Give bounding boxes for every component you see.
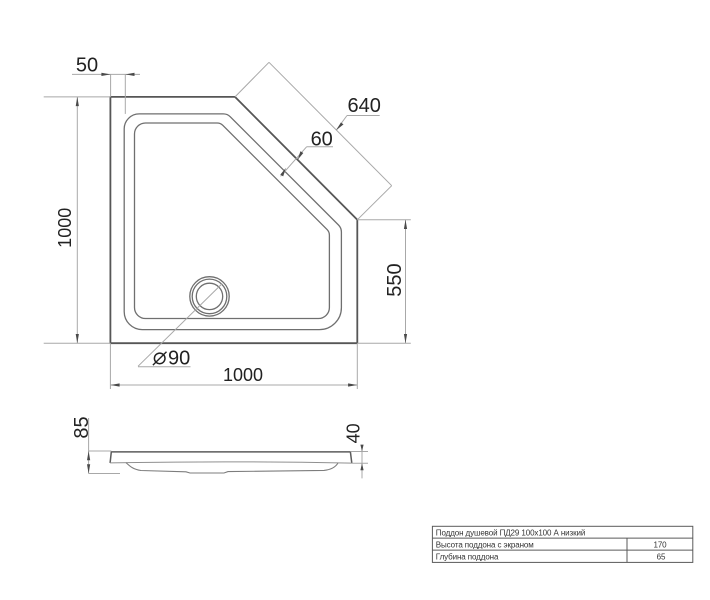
svg-text:1000: 1000 [55, 208, 75, 248]
svg-text:65: 65 [657, 552, 666, 561]
svg-text:550: 550 [384, 263, 406, 296]
svg-text:Поддон душевой ПД29 100х100 А: Поддон душевой ПД29 100х100 А низкий [436, 528, 585, 537]
svg-text:40: 40 [344, 423, 364, 443]
svg-text:90: 90 [168, 348, 190, 370]
svg-text:60: 60 [311, 128, 333, 150]
svg-text:50: 50 [76, 54, 98, 76]
svg-text:Глубина поддона: Глубина поддона [436, 552, 499, 561]
svg-text:Высота поддона с экраном: Высота поддона с экраном [436, 540, 534, 549]
svg-text:170: 170 [653, 540, 667, 549]
svg-text:640: 640 [348, 95, 381, 117]
svg-text:1000: 1000 [223, 365, 263, 385]
svg-text:85: 85 [71, 416, 93, 438]
